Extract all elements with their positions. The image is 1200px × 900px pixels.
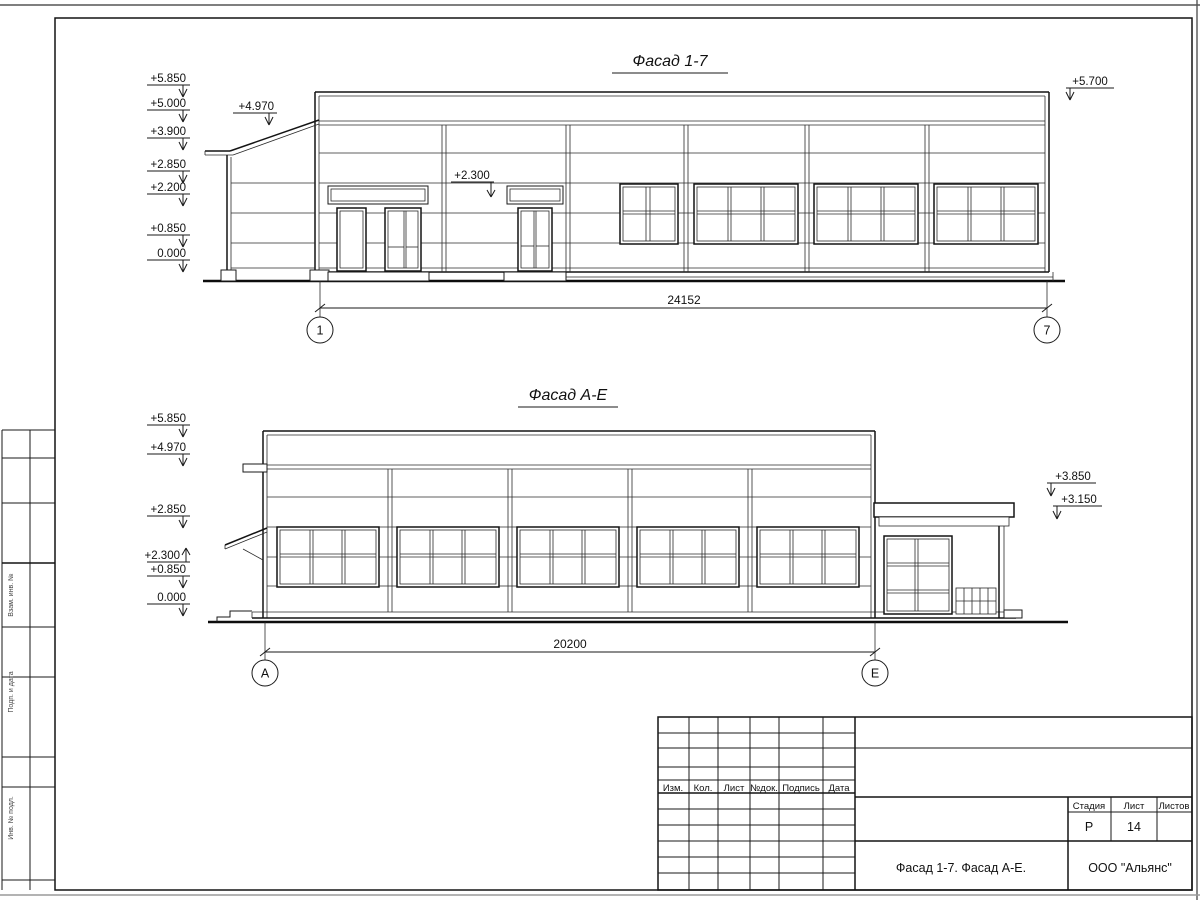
rev-col-data: Дата xyxy=(828,783,850,794)
level-value: +5.850 xyxy=(151,413,187,425)
window xyxy=(934,184,1038,244)
stage-header: Стадия xyxy=(1073,801,1105,812)
level-value: +5.850 xyxy=(151,73,187,85)
facade-a-e-title-text: Фасад А-Е xyxy=(529,387,608,404)
sheet-value: 14 xyxy=(1127,820,1141,834)
level-value: +2.200 xyxy=(151,182,187,194)
stage-value: Р xyxy=(1085,820,1093,834)
side-stamp-label: Взам. инв. № xyxy=(8,573,15,616)
annex-window xyxy=(884,536,952,614)
entrance-door-double xyxy=(385,208,421,271)
company-name: ООО "Альянс" xyxy=(1088,861,1172,875)
facade-1-7-title-text: Фасад 1-7 xyxy=(633,53,709,70)
entrance-door-double xyxy=(518,208,552,271)
side-stamp-label: Инв. № подл. xyxy=(8,796,15,840)
axis-label: Е xyxy=(871,667,879,681)
window xyxy=(757,527,859,587)
level-value: +2.850 xyxy=(151,159,187,171)
annex-grate xyxy=(956,588,996,614)
entrance-platform xyxy=(504,272,566,281)
window xyxy=(517,527,619,587)
axis-circle-7: 7 xyxy=(1034,317,1060,343)
window xyxy=(277,527,379,587)
level-value: 0.000 xyxy=(157,248,186,260)
level-value: +2.300 xyxy=(454,170,490,182)
dimension-value: 24152 xyxy=(667,293,701,307)
axis-label: 7 xyxy=(1044,324,1051,338)
entrance-platform xyxy=(328,272,429,281)
level-value: +4.970 xyxy=(239,101,275,113)
annex-fascia xyxy=(879,517,1009,526)
level-value: +5.000 xyxy=(151,98,187,110)
level-value: +2.850 xyxy=(151,504,187,516)
level-value: +3.900 xyxy=(151,126,187,138)
annex-step xyxy=(1004,610,1022,618)
axis-label: 1 xyxy=(317,324,324,338)
window xyxy=(637,527,739,587)
rev-col-izm: Изм. xyxy=(663,783,683,794)
axis-circle-1: 1 xyxy=(307,317,333,343)
level-value: +0.850 xyxy=(151,564,187,576)
level-value: +0.850 xyxy=(151,223,187,235)
axis-label: А xyxy=(261,667,270,681)
drawing-title: Фасад 1-7. Фасад А-Е. xyxy=(896,861,1026,875)
window xyxy=(694,184,798,244)
level-value: +2.300 xyxy=(145,550,181,562)
rev-col-ndok: №док. xyxy=(750,783,778,794)
rev-col-podpis: Подпись xyxy=(782,783,820,794)
rev-col-kol: Кол. xyxy=(694,783,713,794)
level-value: +3.150 xyxy=(1061,494,1097,506)
dimension-value: 20200 xyxy=(553,637,587,651)
window xyxy=(814,184,918,244)
window xyxy=(620,184,678,244)
side-stamp-label: Подп. и дата xyxy=(8,671,15,712)
level-value: +5.700 xyxy=(1072,76,1108,88)
axis-circle-e: Е xyxy=(862,660,888,686)
sheets-header: Листов xyxy=(1159,801,1190,812)
level-value: +4.970 xyxy=(151,442,187,454)
axis-circle-a: А xyxy=(252,660,278,686)
sheet-header: Лист xyxy=(1124,801,1145,812)
level-value: +3.850 xyxy=(1055,471,1091,483)
rev-col-list: Лист xyxy=(724,783,745,794)
window xyxy=(397,527,499,587)
drawing-sheet: Взам. инв. № Подп. и дата Инв. № подл. Ф… xyxy=(0,0,1200,900)
level-value: 0.000 xyxy=(157,592,186,604)
annex-roof-slab xyxy=(874,503,1014,517)
entrance-door xyxy=(337,208,366,271)
beam-stub xyxy=(243,464,267,472)
